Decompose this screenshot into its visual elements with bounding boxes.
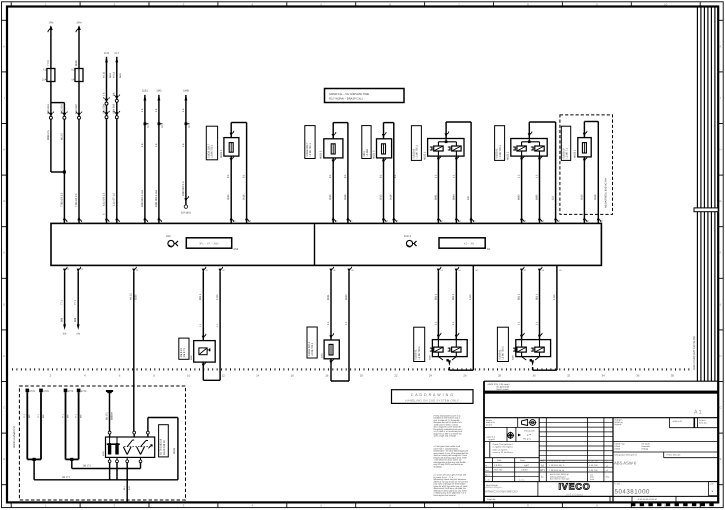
svg-text:3PL – ST – JWC: 3PL – ST – JWC: [199, 243, 219, 246]
svg-text:4B 171: 4B 171: [62, 476, 71, 479]
svg-text:GRNR K2L – 5G SORVATE TIME: GRNR K2L – 5G SORVATE TIME: [329, 93, 369, 96]
svg-text:1863 805 1.5M: 1863 805 1.5M: [141, 190, 144, 207]
svg-text:D: D: [3, 354, 5, 358]
svg-text:K: K: [3, 44, 5, 48]
svg-text:L3 86 720.1: L3 86 720.1: [418, 346, 421, 360]
svg-text:1:50 eg 1:55: 1:50 eg 1:55: [524, 430, 535, 433]
svg-text:1 NFXD5 ST 16: 1 NFXD5 ST 16: [549, 459, 565, 462]
svg-text:E: E: [3, 302, 5, 306]
svg-text:Pcrtjce /: Pcrtjce /: [699, 419, 706, 422]
svg-text:6729: 6729: [30, 390, 36, 393]
svg-text:8891: 8891: [434, 194, 437, 200]
svg-text:14: 14: [256, 374, 260, 378]
svg-text:88 171: 88 171: [105, 412, 108, 420]
svg-text:5550: 5550: [135, 294, 138, 300]
svg-text:HANDLING ON CAD SYSTEM ONLY: HANDLING ON CAD SYSTEM ONLY: [405, 398, 459, 402]
svg-text:1N0.1: 1N0.1: [404, 235, 411, 238]
svg-text:1 1: 1 1: [452, 321, 455, 325]
svg-text:28: 28: [498, 374, 502, 378]
svg-text:34: 34: [602, 374, 606, 378]
svg-text:0015: 0015: [227, 194, 230, 200]
svg-text:1 1: 1 1: [434, 174, 437, 178]
svg-text:M0001 AU/MAIN M: M0001 AU/MAIN M: [13, 427, 16, 448]
svg-text:0016: 0016: [594, 194, 597, 200]
svg-text:38: 38: [671, 374, 675, 378]
svg-text:3B 171: 3B 171: [83, 464, 92, 467]
svg-text:1.5N: 1.5N: [469, 295, 472, 300]
svg-text:881 1: 881 1: [518, 293, 521, 300]
svg-text:felect i coacti: felect i coacti: [497, 388, 510, 391]
svg-text:ccecer e( 32, 5te-Geece: ccecer e( 32, 5te-Geece: [493, 451, 513, 454]
svg-text:50L-50A: 50L-50A: [102, 104, 105, 114]
svg-text:F1/: F1/: [43, 69, 47, 72]
svg-text:L3 86 720.1: L3 86 720.1: [502, 346, 505, 360]
svg-text:881 1: 881 1: [452, 293, 455, 300]
svg-text:0015: 0015: [379, 194, 382, 200]
svg-text:6729: 6729: [43, 390, 49, 393]
svg-text:BM 7/35c5 5/7 5e5 cgc5: BM 7/35c5 5/7 5e5 cgc5: [550, 478, 569, 481]
svg-text:18.08 538 18: 18.08 538 18: [163, 440, 166, 455]
svg-text:44 18: 44 18: [102, 71, 105, 78]
svg-text:have agents law several: have agents law several: [434, 494, 457, 497]
svg-text:tc 2 gebce ceV cetgets c: tc 2 gebce ceV cetgets c: [493, 445, 514, 448]
svg-text:6/4: 6/4: [76, 333, 80, 336]
svg-text:M021 2: M021 2: [320, 150, 323, 159]
svg-text:110: 110: [467, 195, 470, 200]
svg-text:1M2: 1M2: [156, 90, 162, 93]
svg-text:6/4: 6/4: [63, 333, 67, 336]
svg-text:8000: 8000: [75, 60, 78, 66]
svg-text:11B1: 11B1: [142, 90, 149, 93]
svg-text:C: C: [719, 406, 721, 410]
svg-text:1.5N: 1.5N: [216, 295, 219, 300]
svg-text:1FM: 1FM: [48, 22, 53, 25]
svg-text:3.26.736: 3.26.736: [589, 459, 598, 462]
svg-text:1.5N: 1.5N: [553, 295, 556, 300]
svg-text:5g gcM: 5g gcM: [489, 438, 496, 441]
svg-text:26: 26: [463, 374, 467, 378]
svg-text:3FM: 3FM: [77, 22, 82, 25]
svg-text:111: 111: [552, 196, 555, 200]
svg-text:BT1: BT1: [540, 469, 545, 472]
svg-text:12: 12: [222, 374, 226, 378]
svg-text:B: B: [3, 457, 5, 461]
svg-text:32: 32: [567, 374, 571, 378]
svg-text:M021 3: M021 3: [372, 150, 375, 159]
svg-text:L3 86 720.1: L3 86 720.1: [311, 342, 314, 356]
svg-text:A.3G.3R.3E.1R.M.3G: A.3G.3R.3E.1R.M.3G: [638, 498, 658, 501]
svg-text:Agrcv: Agrcv: [485, 474, 490, 477]
svg-text:55N-50B: 55N-50B: [113, 103, 116, 113]
svg-text:44 1.5: 44 1.5: [130, 292, 133, 300]
svg-text:1 1: 1 1: [535, 174, 538, 178]
svg-text:1:3e: 1:3e: [710, 482, 714, 485]
svg-text:8 1: 8 1: [227, 174, 230, 178]
svg-text:22: 22: [394, 374, 398, 378]
svg-text:8892: 8892: [518, 194, 521, 200]
svg-text:H: H: [3, 148, 5, 152]
svg-text:0 B 381: 0 B 381: [494, 464, 502, 467]
svg-text:L3 86 720.1: L3 86 720.1: [499, 145, 502, 159]
svg-text:3c5e: 3c5e: [606, 476, 610, 479]
svg-text:8 1: 8 1: [379, 174, 382, 178]
svg-text:3c5e: 3c5e: [590, 478, 594, 481]
svg-text:K2 – JW: K2 – JW: [464, 243, 475, 246]
svg-text:Angra.Nc: Angra.Nc: [487, 498, 495, 501]
svg-text:L3 86 7.1: L3 86 7.1: [566, 147, 569, 158]
svg-text:881 1: 881 1: [434, 293, 437, 300]
svg-text:1.11 GF 1.5: 1.11 GF 1.5: [113, 192, 116, 206]
svg-text:M021: M021: [173, 447, 176, 454]
svg-text:6S5: 6S5: [234, 248, 239, 251]
svg-text:30: 30: [532, 374, 536, 378]
svg-text:M022 1: M022 1: [424, 151, 427, 160]
svg-text:18: 18: [325, 374, 329, 378]
svg-text:1M 8.71: 1M 8.71: [183, 348, 186, 358]
svg-text:C: C: [3, 406, 5, 410]
svg-text:C A D D R A W I N G: C A D D R A W I N G: [411, 393, 454, 397]
svg-text:65C-50C: 65C-50C: [75, 104, 78, 114]
svg-text:B: B: [720, 457, 722, 461]
svg-text:1 1: 1 1: [327, 321, 330, 325]
svg-text:881 1: 881 1: [199, 293, 202, 300]
svg-text:6S0: 6S0: [166, 235, 171, 238]
svg-text:L3 86 720.1: L3 86 720.1: [211, 144, 214, 158]
svg-text:I ADRI e 05.: I ADRI e 05.: [672, 420, 683, 423]
svg-text:0016: 0016: [344, 194, 347, 200]
svg-text:1 1: 1 1: [434, 321, 437, 325]
svg-text:20: 20: [360, 374, 364, 378]
svg-text:0016: 0016: [243, 194, 246, 200]
svg-text:uMMacc/3Mygne: uMMacc/3Mygne: [485, 486, 502, 489]
svg-text:D: D: [719, 354, 721, 358]
svg-text:WRW/CSSGWA!/MECE3: WRW/CSSGWA!/MECE3: [485, 490, 518, 494]
svg-text:1863 805 1.5: 1863 805 1.5: [182, 181, 185, 196]
svg-text:M021 1: M021 1: [220, 149, 223, 158]
svg-text:drawings: drawings: [434, 465, 442, 468]
svg-text:8021: 8021: [327, 294, 330, 300]
svg-text:3.34.736: 3.34.736: [589, 464, 598, 467]
svg-text:IVECO: IVECO: [558, 482, 590, 492]
svg-text:L3 86 720.1: L3 86 720.1: [416, 145, 419, 159]
svg-text:NOME: NOME: [615, 448, 621, 451]
svg-text:8 1: 8 1: [344, 174, 347, 178]
svg-text:58 8: 58 8: [109, 73, 112, 78]
svg-text:6729: 6729: [68, 390, 74, 393]
svg-text:62F186J: 62F186J: [181, 212, 192, 215]
svg-text:1 NFXD5 36 16: 1 NFXD5 36 16: [549, 469, 565, 472]
svg-text:0016: 0016: [390, 194, 393, 200]
svg-text:25A: 25A: [42, 79, 47, 82]
svg-text:N-7: N-7: [115, 52, 120, 55]
svg-text:24: 24: [429, 374, 433, 378]
svg-text:E: E: [720, 302, 722, 306]
svg-text:Stetc dej: Stetc dej: [699, 422, 707, 425]
svg-text:5555 5795/PUMY 6137/E.5W: 5555 5795/PUMY 6137/E.5W: [693, 335, 696, 370]
svg-text:6S: 6S: [487, 248, 490, 251]
svg-text:1 1: 1 1: [518, 321, 521, 325]
svg-text:8020: 8020: [345, 294, 348, 300]
svg-text:ABS ASW 6: ABS ASW 6: [614, 461, 637, 466]
svg-text:44 18: 44 18: [113, 71, 116, 78]
svg-text:7772: 7772: [47, 60, 50, 66]
svg-text:H: H: [719, 148, 721, 152]
svg-text:8894: 8894: [452, 194, 455, 200]
svg-text:M022 2: M022 2: [507, 151, 510, 160]
svg-text:B gfecj5: B gfecj5: [615, 423, 622, 426]
svg-text:Name: Name: [520, 459, 526, 462]
svg-text:tc. a5: tc. a5: [485, 478, 490, 481]
svg-text:3.34.736: 3.34.736: [589, 469, 598, 472]
svg-text:8888M: 8888M: [110, 412, 113, 420]
svg-text:F: F: [3, 251, 5, 255]
svg-text:0015: 0015: [329, 194, 332, 200]
svg-text:10: 10: [187, 374, 191, 378]
svg-text:K. 3ee: K. 3ee: [615, 482, 620, 485]
svg-text:agBT: agBT: [524, 464, 530, 467]
svg-text:1 NFXD5 S61 6: 1 NFXD5 S61 6: [549, 464, 565, 467]
svg-text:K2: K2: [71, 69, 75, 72]
svg-text:20.B.702: 20.B.702: [494, 469, 504, 472]
svg-text:65C-50B: 65C-50B: [60, 104, 63, 114]
svg-text:8 1: 8 1: [243, 174, 246, 178]
svg-text:M7 p7e: M7 p7e: [486, 424, 492, 427]
svg-text:7.88 GR 2.5: 7.88 GR 2.5: [75, 193, 78, 207]
svg-text:8 1: 8 1: [329, 174, 332, 178]
svg-text:1 1: 1 1: [452, 174, 455, 178]
svg-text:6729: 6729: [81, 390, 87, 393]
svg-text:65C-50A: 65C-50A: [47, 104, 50, 114]
svg-text:I V E C O S p A: I V E C O S p A: [566, 493, 584, 496]
svg-text:M023 1: M023 1: [574, 149, 577, 158]
svg-text:1 1: 1 1: [345, 321, 348, 325]
svg-text:1/2/1 a type and 2 longer: 1/2/1 a type and 2 longer: [434, 435, 457, 438]
svg-text:A 1: A 1: [694, 410, 702, 416]
svg-text:1N1: 1N1: [104, 52, 109, 55]
svg-text:G: G: [3, 199, 5, 203]
svg-text:58 8: 58 8: [119, 73, 122, 78]
svg-text:G: G: [719, 199, 721, 203]
svg-text:888: 888: [61, 317, 64, 322]
svg-text:ABS/ASR/EBL 6X2Y/C-RA: ABS/ASR/EBL 6X2Y/C-RA: [605, 178, 608, 208]
svg-text:504381000: 504381000: [615, 488, 651, 495]
svg-text:881 1: 881 1: [535, 293, 538, 300]
svg-text:8866 2.5: 8866 2.5: [47, 130, 50, 140]
svg-text:16: 16: [291, 374, 295, 378]
svg-text:86 2.5: 86 2.5: [60, 132, 63, 140]
svg-text:1861 805 1.5M: 1861 805 1.5M: [155, 190, 158, 207]
svg-text:7788 GR 2.5: 7788 GR 2.5: [60, 192, 63, 207]
svg-text:PSc g 5.c: PSc g 5.c: [523, 438, 531, 441]
svg-text:L3 86 720.1: L3 86 720.1: [309, 143, 312, 157]
svg-text:8 1: 8 1: [394, 174, 397, 178]
svg-text:Redcrjg: Redcrjg: [642, 448, 649, 451]
svg-text:1MB: 1MB: [183, 90, 189, 93]
svg-text:0015: 0015: [580, 194, 583, 200]
svg-text:3d: 3d: [541, 476, 543, 479]
svg-text:6.11 GR 1.5: 6.11 GR 1.5: [102, 192, 105, 206]
svg-text:Dem gcejcee Dem gcet ect: Dem gcejcee Dem gcet ect: [615, 454, 638, 457]
svg-text:14DB1: 14DB1: [521, 469, 528, 472]
svg-text:1 1: 1 1: [518, 174, 521, 178]
svg-text:1 1: 1 1: [535, 321, 538, 325]
svg-text:L3 861: L3 861: [366, 148, 369, 156]
svg-text:8895: 8895: [535, 194, 538, 200]
svg-text:77 1: 77 1: [74, 300, 77, 305]
svg-text:36: 36: [636, 374, 640, 378]
svg-text:CtrcL: CtrcL: [485, 469, 490, 472]
svg-text:5A: 5A: [71, 79, 74, 82]
svg-text:888: 888: [74, 317, 77, 322]
svg-text:Petece 3tetc dec: Petece 3tetc dec: [667, 454, 681, 457]
svg-text:K: K: [720, 44, 722, 48]
svg-text:10: 10: [664, 3, 668, 7]
svg-text:77 1: 77 1: [61, 300, 64, 305]
svg-text:F: F: [720, 251, 722, 255]
svg-text:R3.7 W2RAI – BRA3P CXL): R3.7 W2RAI – BRA3P CXL): [329, 97, 363, 100]
